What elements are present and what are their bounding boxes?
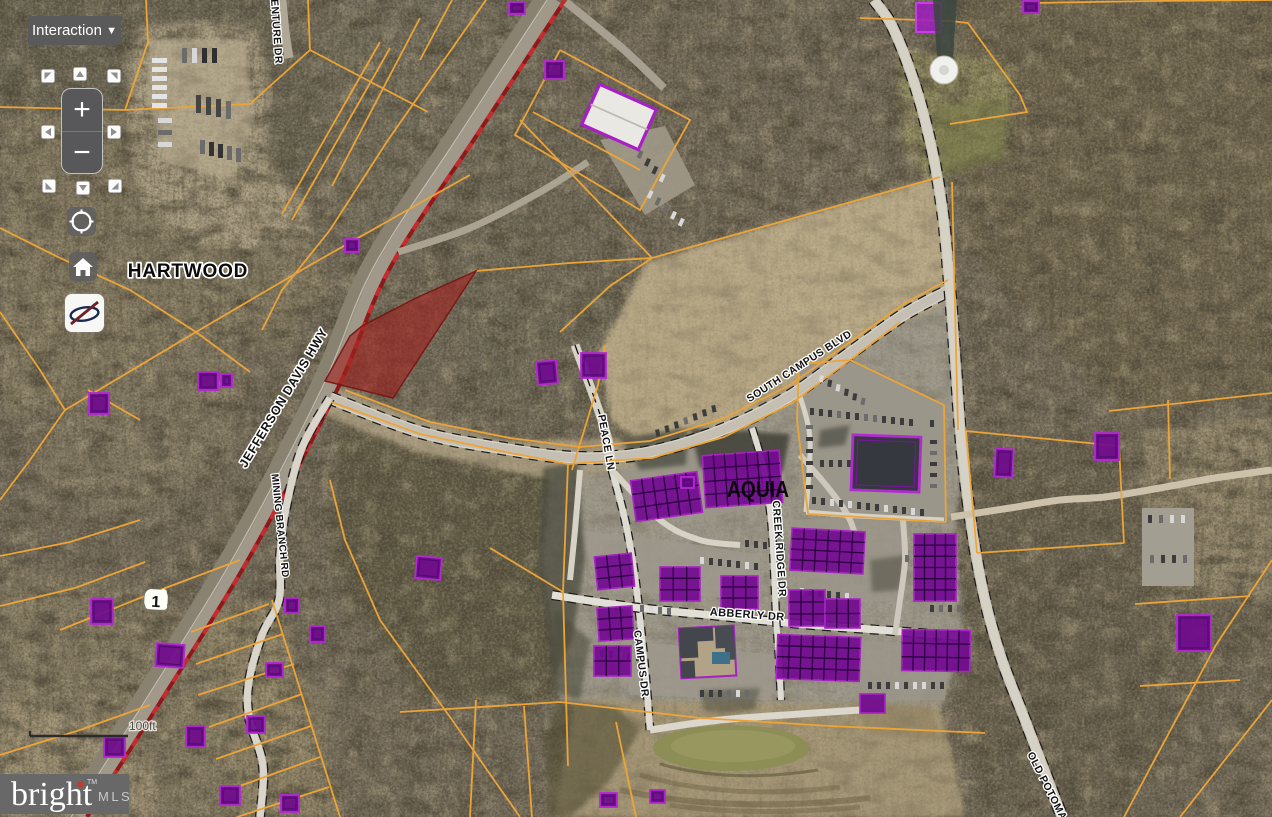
svg-text:1: 1 xyxy=(151,594,161,611)
svg-text:100ft: 100ft xyxy=(129,719,156,733)
svg-text:AQUIA: AQUIA xyxy=(727,476,789,502)
svg-text:HARTWOOD: HARTWOOD xyxy=(128,261,248,282)
